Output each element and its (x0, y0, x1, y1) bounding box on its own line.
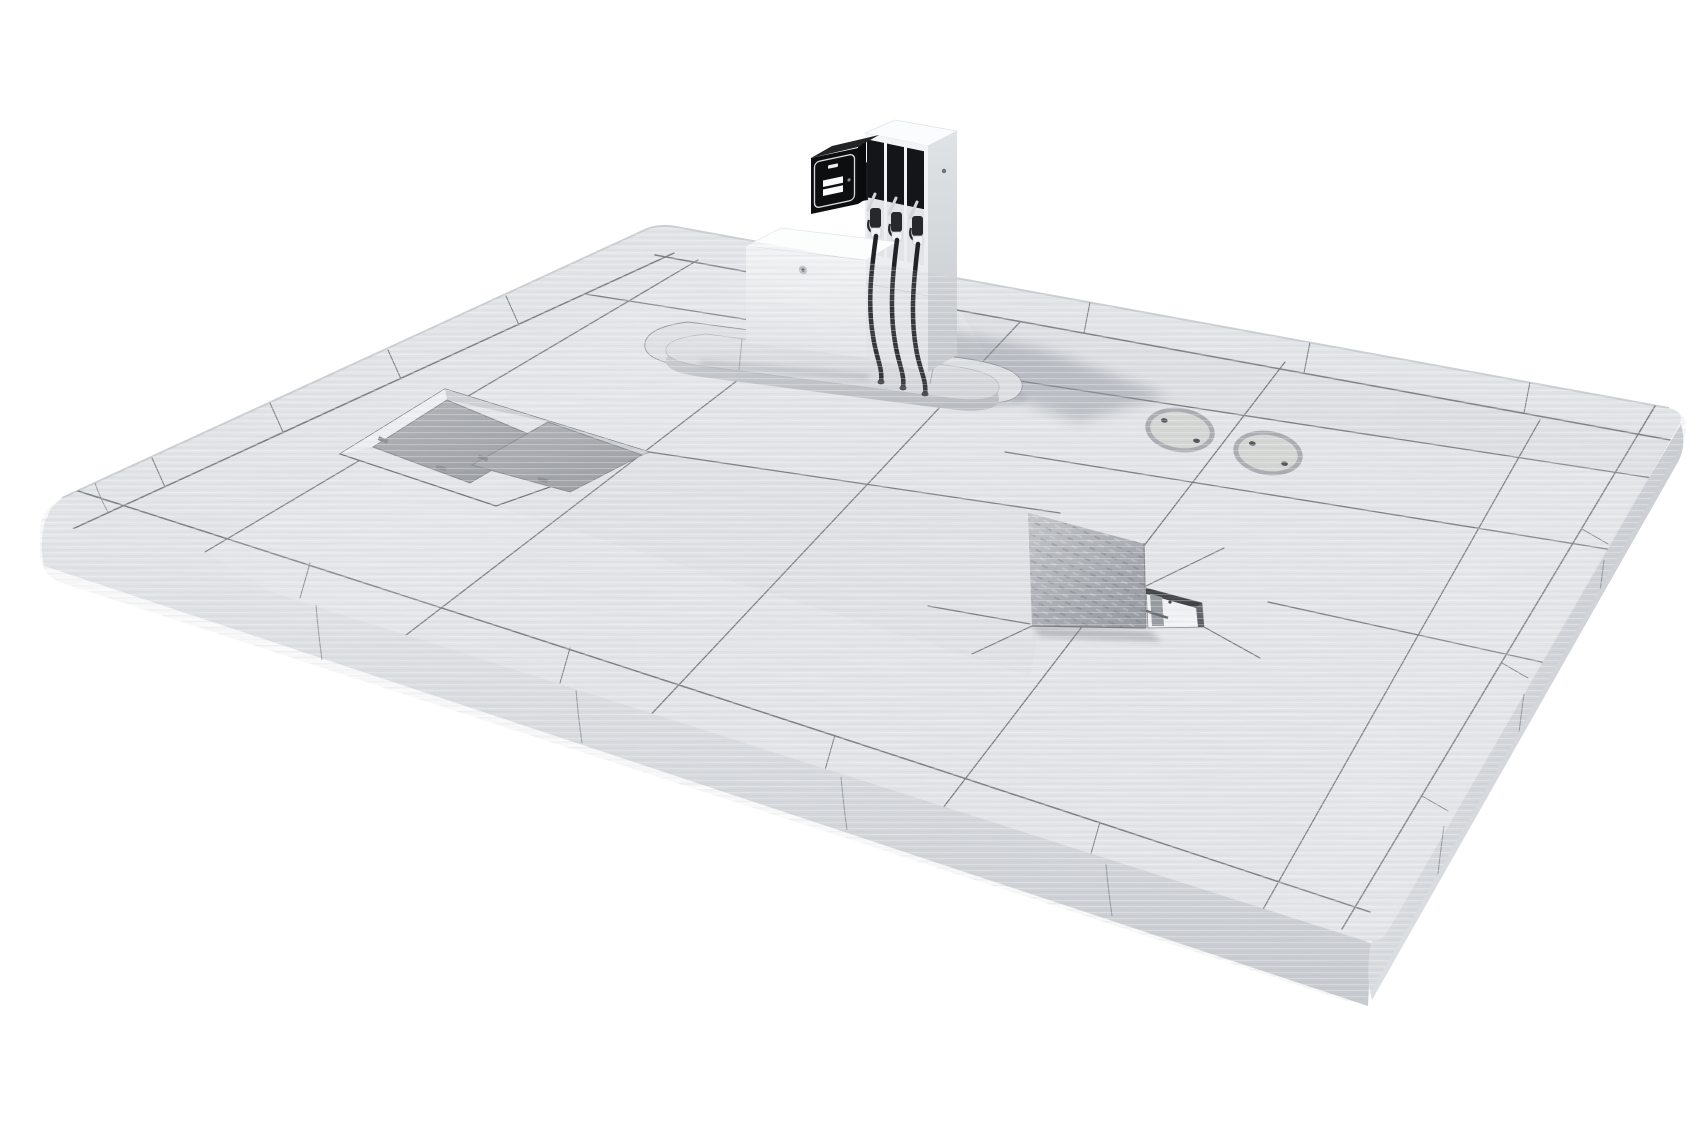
hose-connector (922, 392, 929, 397)
scene-canvas (0, 0, 1703, 1134)
nozzle-body (912, 216, 923, 236)
hose-connector (878, 380, 885, 385)
hatch-bolt (1168, 600, 1171, 603)
cabinet-front-face (746, 246, 866, 358)
terminal-right-face (858, 142, 866, 204)
nozzle-body (870, 208, 881, 228)
dispenser-side-bolt (942, 169, 946, 173)
hatch-hinge-plate (1150, 594, 1164, 626)
dispenser-side-face (928, 131, 957, 372)
hose-connector (900, 386, 907, 391)
nozzle-body (891, 212, 902, 232)
forecourt-render (0, 0, 1703, 1134)
